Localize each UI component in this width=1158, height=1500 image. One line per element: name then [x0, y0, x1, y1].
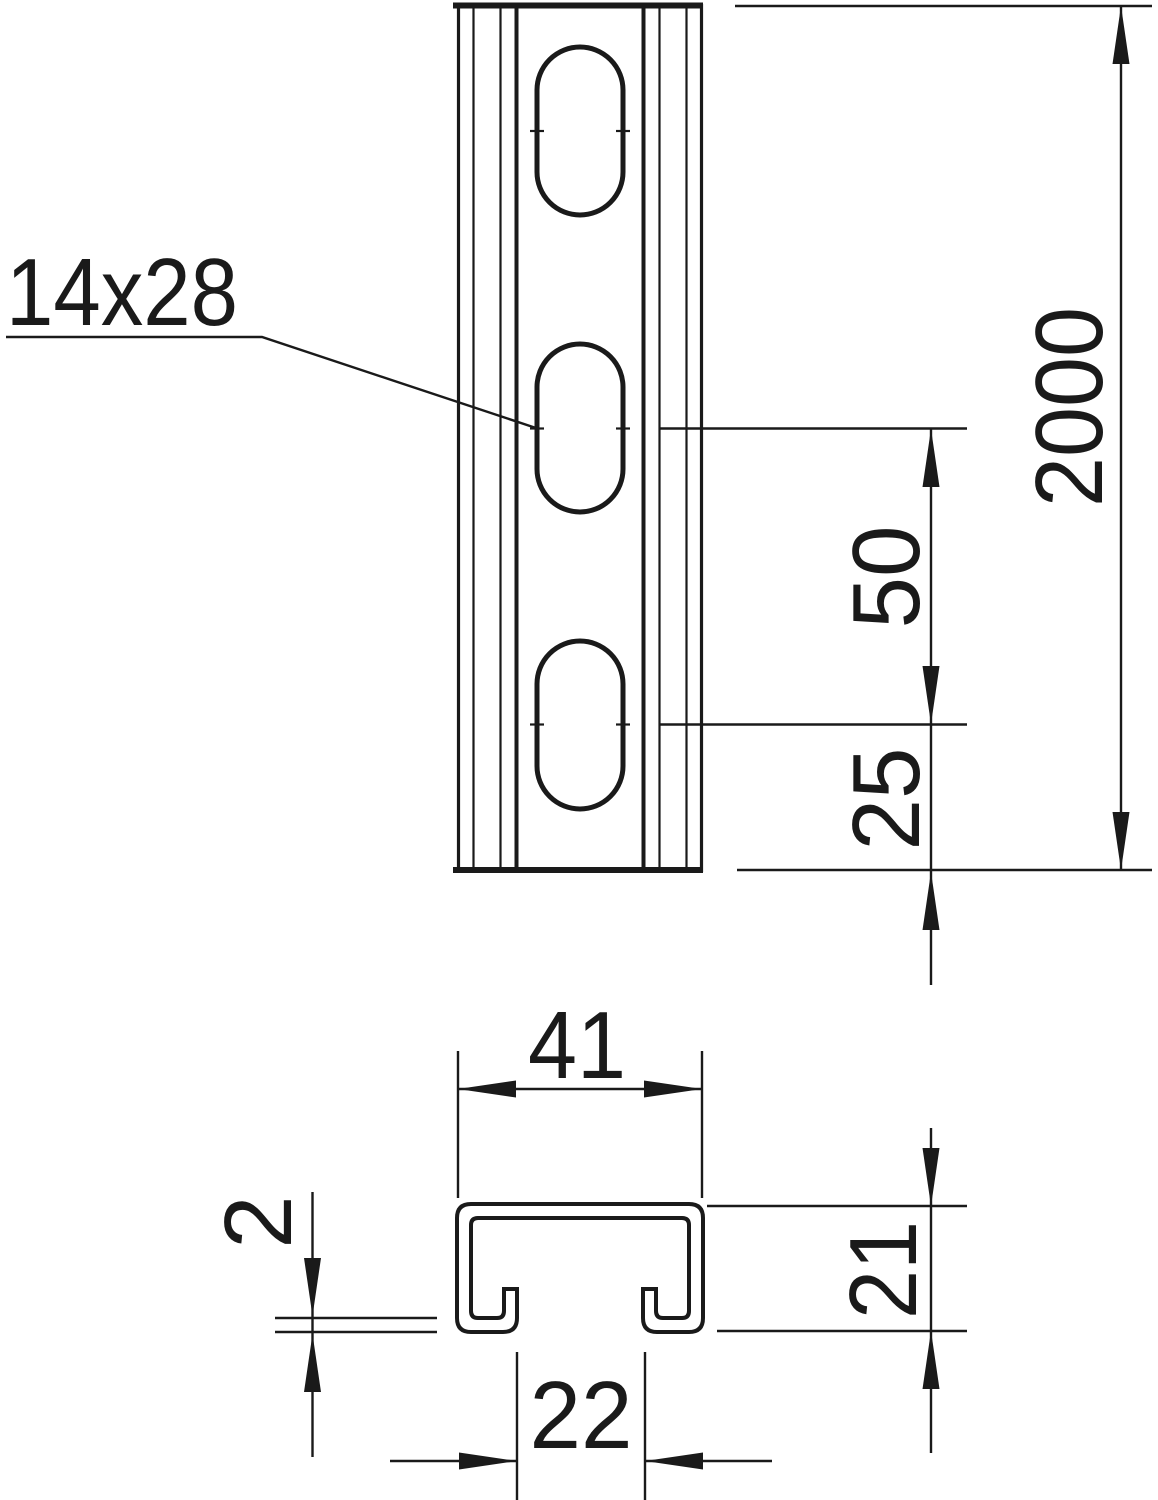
profile-width-label: 41 [528, 992, 626, 1099]
dim-slot-opening: 22 [390, 1352, 772, 1500]
arrow-left-icon [458, 1081, 516, 1098]
dim-profile-width: 41 [458, 992, 702, 1198]
profile-height-label: 21 [830, 1221, 937, 1319]
rail-technical-drawing: 14x28 2000 50 25 [0, 0, 1158, 1500]
slot-pitch-label: 50 [833, 526, 940, 629]
dim-material-thickness: 2 [205, 1192, 437, 1457]
arrow-up-icon [923, 1331, 940, 1389]
arrow-down-icon [1113, 812, 1130, 870]
slot-1 [537, 47, 623, 215]
dim-rail-length: 2000 [735, 6, 1152, 870]
leader-line [6, 337, 536, 428]
slot-size-callout: 14x28 [6, 239, 536, 428]
slot-2 [537, 344, 623, 512]
dim-slot-pitch: 50 [660, 429, 967, 725]
rail-cross-section [457, 1204, 703, 1332]
profile-outline [457, 1204, 703, 1332]
arrow-right-icon [644, 1081, 702, 1098]
rail-length-label: 2000 [1016, 307, 1123, 507]
dim-end-distance: 25 [833, 725, 940, 986]
arrow-down-icon [304, 1258, 321, 1316]
arrow-up-icon [923, 872, 940, 930]
material-thickness-label: 2 [205, 1195, 312, 1248]
arrow-up-icon [923, 429, 940, 487]
dim-profile-height: 21 [707, 1128, 967, 1453]
arrow-left-icon [645, 1453, 703, 1470]
arrow-up-icon [1113, 6, 1130, 64]
arrow-right-icon [459, 1453, 517, 1470]
end-distance-label: 25 [833, 748, 940, 851]
slot-3 [537, 641, 623, 809]
arrow-down-icon [923, 1148, 940, 1206]
technical-drawing-page: 14x28 2000 50 25 [0, 0, 1158, 1500]
slot-opening-label: 22 [530, 1362, 633, 1469]
arrow-up-icon [304, 1334, 321, 1392]
arrow-down-icon [923, 666, 940, 724]
rail-front-view [453, 4, 703, 872]
slot-size-label: 14x28 [6, 239, 238, 346]
